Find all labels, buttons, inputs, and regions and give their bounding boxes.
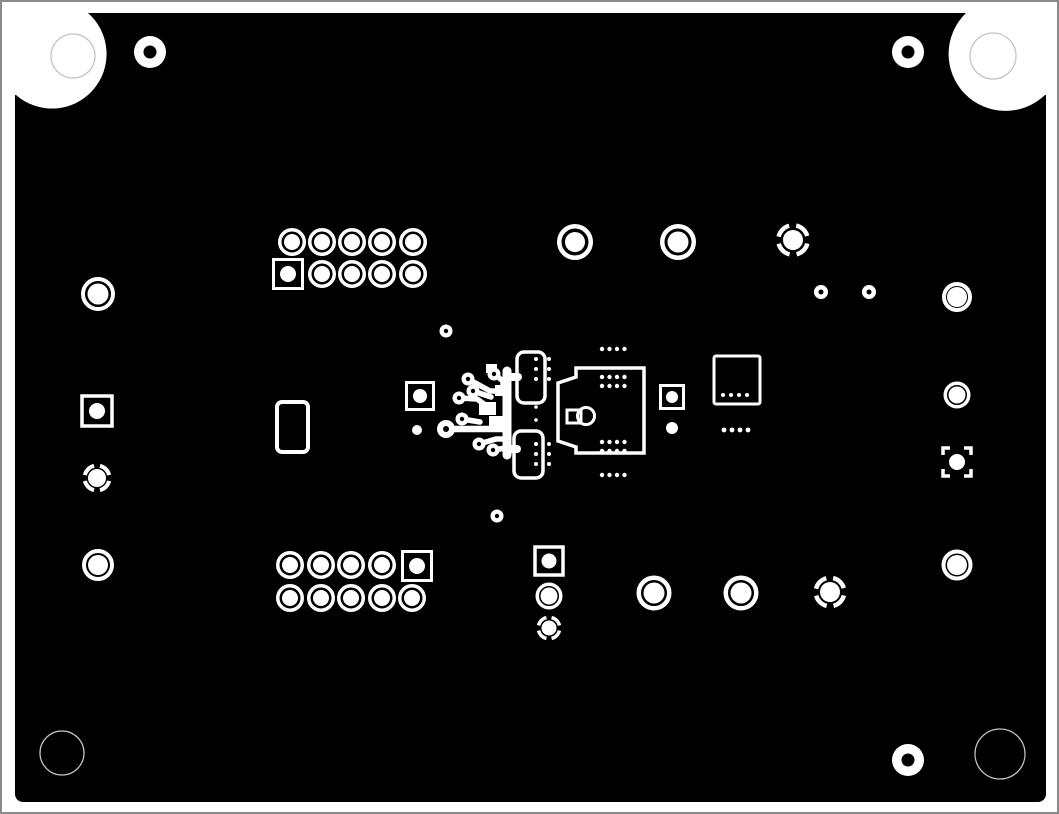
grid-dot bbox=[615, 375, 619, 379]
via-pad-center bbox=[88, 284, 109, 305]
grid-dot bbox=[547, 377, 551, 381]
grid-dot bbox=[607, 449, 611, 453]
grid-dot bbox=[730, 428, 735, 433]
via-pad-center bbox=[344, 266, 360, 282]
grid-dot bbox=[737, 393, 741, 397]
via-pad-center bbox=[404, 590, 420, 606]
copper-fill-rect bbox=[495, 385, 508, 396]
grid-dot bbox=[615, 384, 619, 388]
grid-dot bbox=[600, 347, 604, 351]
pcb-layer-screenshot bbox=[0, 0, 1059, 814]
via-pad-center bbox=[947, 287, 967, 307]
small-via-hole bbox=[867, 290, 872, 295]
thermal-pad-center bbox=[820, 582, 840, 602]
test-point-dot bbox=[412, 425, 422, 435]
mounting-hole-hole bbox=[902, 46, 915, 59]
via-pad-center bbox=[314, 234, 330, 250]
grid-dot bbox=[607, 384, 611, 388]
thermal-pad-center bbox=[88, 469, 106, 487]
grid-dot bbox=[600, 473, 604, 477]
grid-dot bbox=[534, 367, 538, 371]
grid-dot bbox=[622, 347, 626, 351]
trace-pad-hole bbox=[460, 417, 464, 421]
via-pad-center bbox=[949, 387, 966, 404]
via-pad-center bbox=[314, 266, 330, 282]
board-outline bbox=[15, 13, 1046, 802]
trace-pad-hole bbox=[477, 442, 481, 446]
grid-dot bbox=[534, 405, 538, 409]
trace-pad-hole bbox=[492, 372, 496, 376]
trace-pad-hole bbox=[457, 396, 461, 400]
grid-dot bbox=[721, 393, 725, 397]
copper-fill-rect bbox=[489, 416, 504, 427]
square-pad-center bbox=[89, 403, 105, 419]
via-pad-center bbox=[668, 232, 689, 253]
square-pad-center bbox=[542, 554, 557, 569]
square-pad-center bbox=[949, 454, 965, 470]
via-pad-center bbox=[731, 583, 752, 604]
grid-dot bbox=[607, 440, 611, 444]
pcb-layer-view bbox=[0, 0, 1059, 814]
grid-dot bbox=[600, 375, 604, 379]
grid-dot bbox=[534, 442, 538, 446]
grid-dot bbox=[534, 462, 538, 466]
grid-dot bbox=[547, 367, 551, 371]
grid-dot bbox=[534, 377, 538, 381]
grid-dot bbox=[600, 440, 604, 444]
grid-dot bbox=[615, 440, 619, 444]
grid-dot bbox=[600, 384, 604, 388]
grid-dot bbox=[622, 384, 626, 388]
grid-dot bbox=[622, 449, 626, 453]
grid-dot bbox=[547, 357, 551, 361]
via-pad-center bbox=[374, 266, 390, 282]
trace-pad-hole bbox=[443, 426, 449, 432]
small-via-hole bbox=[495, 514, 499, 518]
square-pad-center bbox=[666, 391, 678, 403]
via-pad-center bbox=[405, 234, 421, 250]
square-pad-center bbox=[409, 558, 425, 574]
via-pad-center bbox=[88, 555, 108, 575]
grid-dot bbox=[607, 375, 611, 379]
grid-dot bbox=[607, 473, 611, 477]
test-point-dot bbox=[666, 422, 678, 434]
grid-dot bbox=[622, 375, 626, 379]
square-pad-center bbox=[413, 389, 427, 403]
via-pad-center bbox=[644, 583, 665, 604]
via-pad-center bbox=[343, 590, 359, 606]
copper-fill-rect bbox=[479, 402, 496, 415]
thermal-pad-center bbox=[783, 230, 803, 250]
grid-dot bbox=[534, 452, 538, 456]
via-pad-center bbox=[947, 555, 967, 575]
grid-dot bbox=[729, 393, 733, 397]
grid-dot bbox=[722, 428, 727, 433]
via-pad-center bbox=[374, 234, 390, 250]
trace-pad-hole bbox=[466, 377, 470, 381]
grid-dot bbox=[600, 449, 604, 453]
grid-dot bbox=[746, 428, 751, 433]
grid-dot bbox=[547, 462, 551, 466]
via-pad-center bbox=[313, 590, 329, 606]
via-pad-center bbox=[284, 234, 300, 250]
grid-dot bbox=[738, 428, 743, 433]
small-via-hole bbox=[444, 329, 448, 333]
via-pad-center bbox=[282, 557, 298, 573]
via-pad-center bbox=[343, 557, 359, 573]
trace-pad-hole bbox=[491, 448, 495, 452]
via-pad-center bbox=[313, 557, 329, 573]
via-pad-center bbox=[405, 266, 421, 282]
square-pad-center bbox=[280, 266, 296, 282]
thermal-pad-center bbox=[542, 621, 557, 636]
small-via-hole bbox=[819, 290, 824, 295]
grid-dot bbox=[534, 357, 538, 361]
via-pad-center bbox=[374, 590, 390, 606]
mounting-hole-hole bbox=[144, 46, 157, 59]
grid-dot bbox=[622, 440, 626, 444]
grid-dot bbox=[615, 473, 619, 477]
grid-dot bbox=[745, 393, 749, 397]
grid-dot bbox=[615, 449, 619, 453]
grid-dot bbox=[622, 473, 626, 477]
via-pad-center bbox=[374, 557, 390, 573]
via-pad-center bbox=[565, 232, 585, 252]
via-pad-center bbox=[282, 590, 298, 606]
mounting-hole-hole bbox=[902, 754, 915, 767]
trace-pad-hole bbox=[471, 389, 475, 393]
grid-dot bbox=[607, 347, 611, 351]
via-pad-center bbox=[344, 234, 360, 250]
grid-dot bbox=[534, 418, 538, 422]
grid-dot bbox=[615, 347, 619, 351]
grid-dot bbox=[547, 452, 551, 456]
via-pad-center bbox=[541, 588, 558, 605]
grid-dot bbox=[547, 442, 551, 446]
